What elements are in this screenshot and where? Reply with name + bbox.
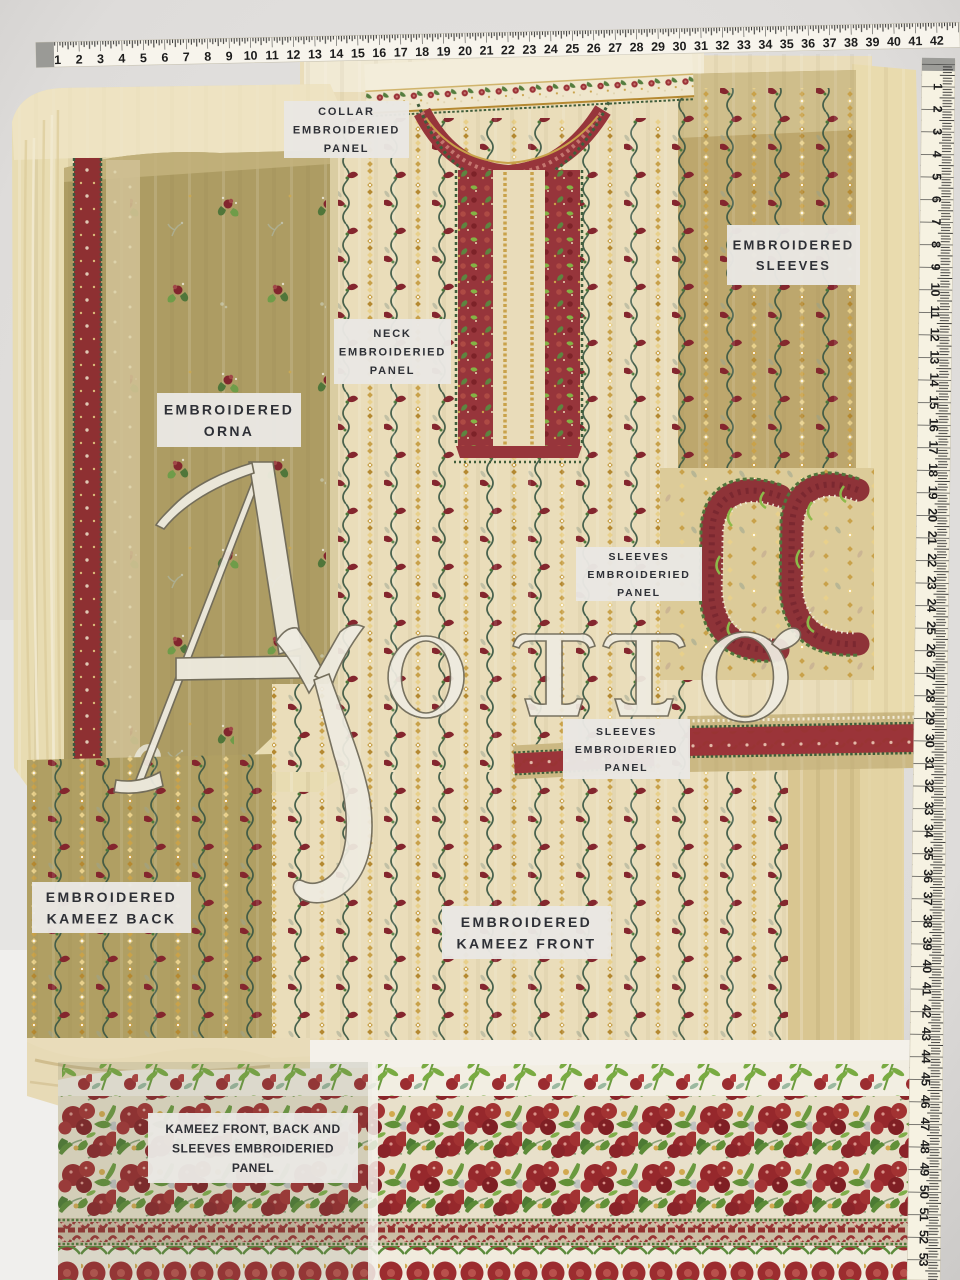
svg-text:19: 19	[926, 486, 940, 500]
svg-text:PANEL: PANEL	[324, 143, 369, 155]
svg-text:24: 24	[924, 598, 938, 612]
svg-text:EMBROIDERED: EMBROIDERED	[733, 237, 855, 252]
svg-text:11: 11	[265, 48, 279, 62]
svg-text:1: 1	[931, 83, 945, 90]
svg-text:26: 26	[587, 41, 601, 55]
svg-text:2: 2	[930, 106, 944, 113]
svg-text:6: 6	[161, 51, 168, 65]
svg-text:1: 1	[54, 53, 61, 67]
svg-text:39: 39	[865, 35, 879, 49]
svg-text:EMBROIDERIED: EMBROIDERIED	[339, 347, 446, 359]
svg-text:PANEL: PANEL	[617, 587, 661, 599]
svg-text:14: 14	[927, 373, 941, 387]
svg-text:KAMEEZ FRONT, BACK AND: KAMEEZ FRONT, BACK AND	[165, 1122, 340, 1136]
svg-text:16: 16	[372, 46, 386, 60]
svg-text:7: 7	[929, 218, 943, 225]
svg-text:EMBROIDERIED: EMBROIDERIED	[293, 125, 400, 137]
svg-text:16: 16	[926, 418, 940, 432]
svg-text:39: 39	[920, 937, 934, 951]
svg-text:31: 31	[694, 39, 708, 53]
svg-text:46: 46	[918, 1095, 932, 1109]
svg-text:43: 43	[919, 1027, 933, 1041]
svg-text:41: 41	[908, 34, 922, 48]
svg-text:27: 27	[923, 666, 937, 680]
svg-text:34: 34	[922, 824, 936, 838]
svg-text:4: 4	[118, 52, 125, 66]
svg-text:22: 22	[501, 43, 515, 57]
svg-text:15: 15	[927, 395, 941, 409]
svg-text:36: 36	[801, 36, 815, 50]
svg-text:5: 5	[930, 173, 944, 180]
svg-text:22: 22	[925, 553, 939, 567]
svg-text:8: 8	[929, 241, 943, 248]
svg-text:EMBROIDERED: EMBROIDERED	[461, 914, 592, 930]
svg-text:48: 48	[918, 1140, 932, 1154]
svg-text:51: 51	[917, 1207, 931, 1221]
svg-text:24: 24	[544, 42, 558, 56]
svg-text:42: 42	[930, 34, 944, 48]
svg-text:SLEEVES: SLEEVES	[596, 726, 657, 738]
svg-text:53: 53	[916, 1253, 930, 1267]
svg-text:37: 37	[823, 36, 837, 50]
svg-text:40: 40	[887, 35, 901, 49]
svg-text:52: 52	[917, 1230, 931, 1244]
svg-text:8: 8	[204, 50, 211, 64]
svg-text:32: 32	[715, 38, 729, 52]
svg-text:SLEEVES EMBROIDERIED: SLEEVES EMBROIDERIED	[172, 1141, 334, 1155]
svg-text:32: 32	[922, 779, 936, 793]
svg-text:PANEL: PANEL	[370, 365, 415, 377]
svg-text:26: 26	[924, 644, 938, 658]
svg-text:KAMEEZ FRONT: KAMEEZ FRONT	[456, 935, 596, 951]
svg-text:25: 25	[924, 621, 938, 635]
svg-text:NECK: NECK	[373, 328, 411, 340]
svg-text:SLEEVES: SLEEVES	[756, 258, 831, 273]
svg-text:30: 30	[923, 734, 937, 748]
svg-text:17: 17	[926, 440, 940, 454]
svg-text:21: 21	[925, 531, 939, 545]
svg-text:EMBROIDERED: EMBROIDERED	[164, 401, 294, 417]
svg-text:28: 28	[629, 40, 643, 54]
svg-text:38: 38	[844, 36, 858, 50]
svg-text:35: 35	[921, 847, 935, 861]
svg-text:28: 28	[923, 689, 937, 703]
svg-text:13: 13	[308, 47, 322, 61]
svg-text:27: 27	[608, 41, 622, 55]
svg-text:12: 12	[286, 48, 300, 62]
svg-text:21: 21	[479, 43, 493, 57]
svg-text:20: 20	[458, 44, 472, 58]
svg-text:33: 33	[737, 38, 751, 52]
svg-text:38: 38	[920, 914, 934, 928]
svg-text:13: 13	[927, 350, 941, 364]
svg-text:12: 12	[928, 328, 942, 342]
svg-text:17: 17	[394, 45, 408, 59]
svg-text:COLLAR: COLLAR	[318, 106, 375, 118]
svg-text:23: 23	[522, 43, 536, 57]
svg-text:50: 50	[917, 1185, 931, 1199]
svg-text:40: 40	[920, 959, 934, 973]
svg-text:EMBROIDERED: EMBROIDERED	[46, 889, 177, 905]
svg-text:6: 6	[929, 196, 943, 203]
svg-text:25: 25	[565, 42, 579, 56]
svg-text:15: 15	[351, 46, 365, 60]
svg-text:SLEEVES: SLEEVES	[608, 551, 669, 563]
svg-text:9: 9	[226, 49, 233, 63]
svg-text:7: 7	[183, 50, 190, 64]
svg-text:4: 4	[930, 151, 944, 158]
svg-text:2: 2	[75, 52, 82, 66]
svg-text:20: 20	[925, 508, 939, 522]
svg-text:44: 44	[919, 1049, 933, 1063]
svg-text:34: 34	[758, 37, 772, 51]
svg-text:3: 3	[97, 52, 104, 66]
svg-text:33: 33	[922, 801, 936, 815]
svg-text:18: 18	[926, 463, 940, 477]
svg-text:42: 42	[919, 1004, 933, 1018]
svg-text:EMBROIDERIED: EMBROIDERIED	[575, 744, 678, 756]
svg-text:41: 41	[920, 982, 934, 996]
svg-text:10: 10	[243, 49, 257, 63]
svg-text:45: 45	[918, 1072, 932, 1086]
svg-text:EMBROIDERIED: EMBROIDERIED	[587, 569, 690, 581]
svg-text:KAMEEZ BACK: KAMEEZ BACK	[47, 910, 177, 926]
svg-text:10: 10	[928, 283, 942, 297]
svg-text:36: 36	[921, 869, 935, 883]
svg-text:29: 29	[651, 40, 665, 54]
svg-text:30: 30	[672, 39, 686, 53]
svg-text:29: 29	[923, 711, 937, 725]
svg-text:23: 23	[925, 576, 939, 590]
svg-text:ORNA: ORNA	[204, 423, 254, 439]
svg-text:PANEL: PANEL	[605, 762, 649, 774]
svg-text:PANEL: PANEL	[232, 1161, 274, 1175]
svg-text:37: 37	[921, 892, 935, 906]
svg-text:31: 31	[922, 756, 936, 770]
svg-text:35: 35	[780, 37, 794, 51]
svg-text:14: 14	[329, 47, 343, 61]
svg-text:3: 3	[930, 128, 944, 135]
svg-text:49: 49	[917, 1162, 931, 1176]
svg-text:11: 11	[928, 305, 942, 318]
svg-text:18: 18	[415, 45, 429, 59]
svg-text:19: 19	[437, 44, 451, 58]
svg-text:5: 5	[140, 51, 147, 65]
svg-text:9: 9	[928, 263, 942, 270]
svg-text:47: 47	[918, 1117, 932, 1131]
